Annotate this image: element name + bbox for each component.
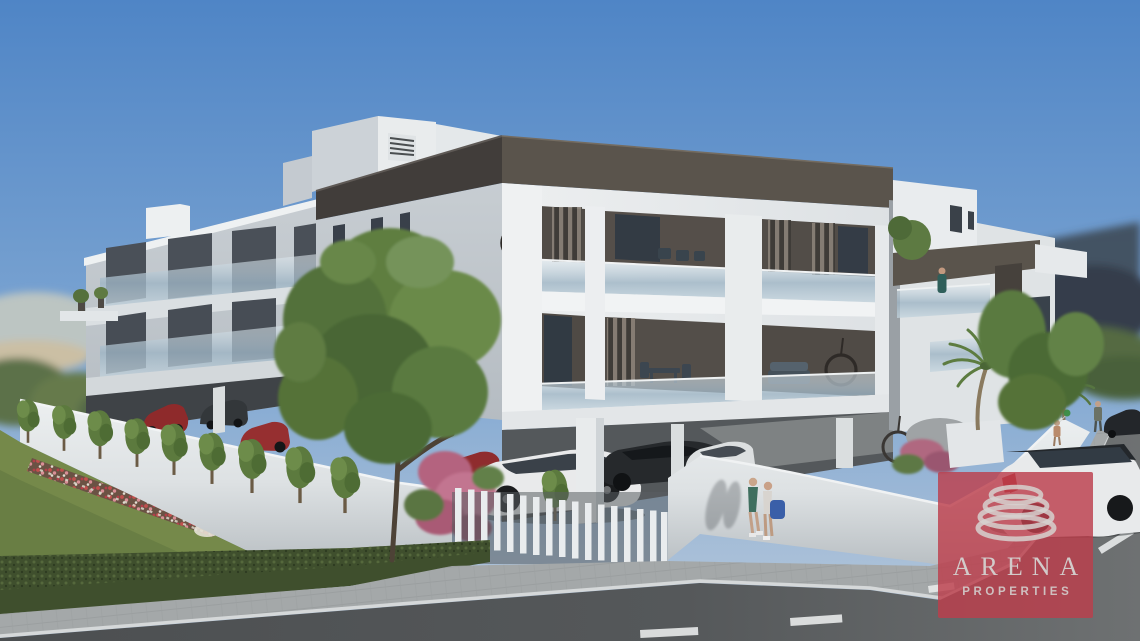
arena-properties-watermark: ARENA PROPERTIES [938,472,1093,618]
render-image: ARENA PROPERTIES [0,0,1140,641]
balcony-person [938,268,947,294]
blue-bag [770,500,785,519]
brand-name: ARENA [944,554,1088,580]
vent-grille [388,133,416,162]
coil-rings-icon [961,482,1071,544]
brand-tagline: PROPERTIES [959,587,1073,599]
